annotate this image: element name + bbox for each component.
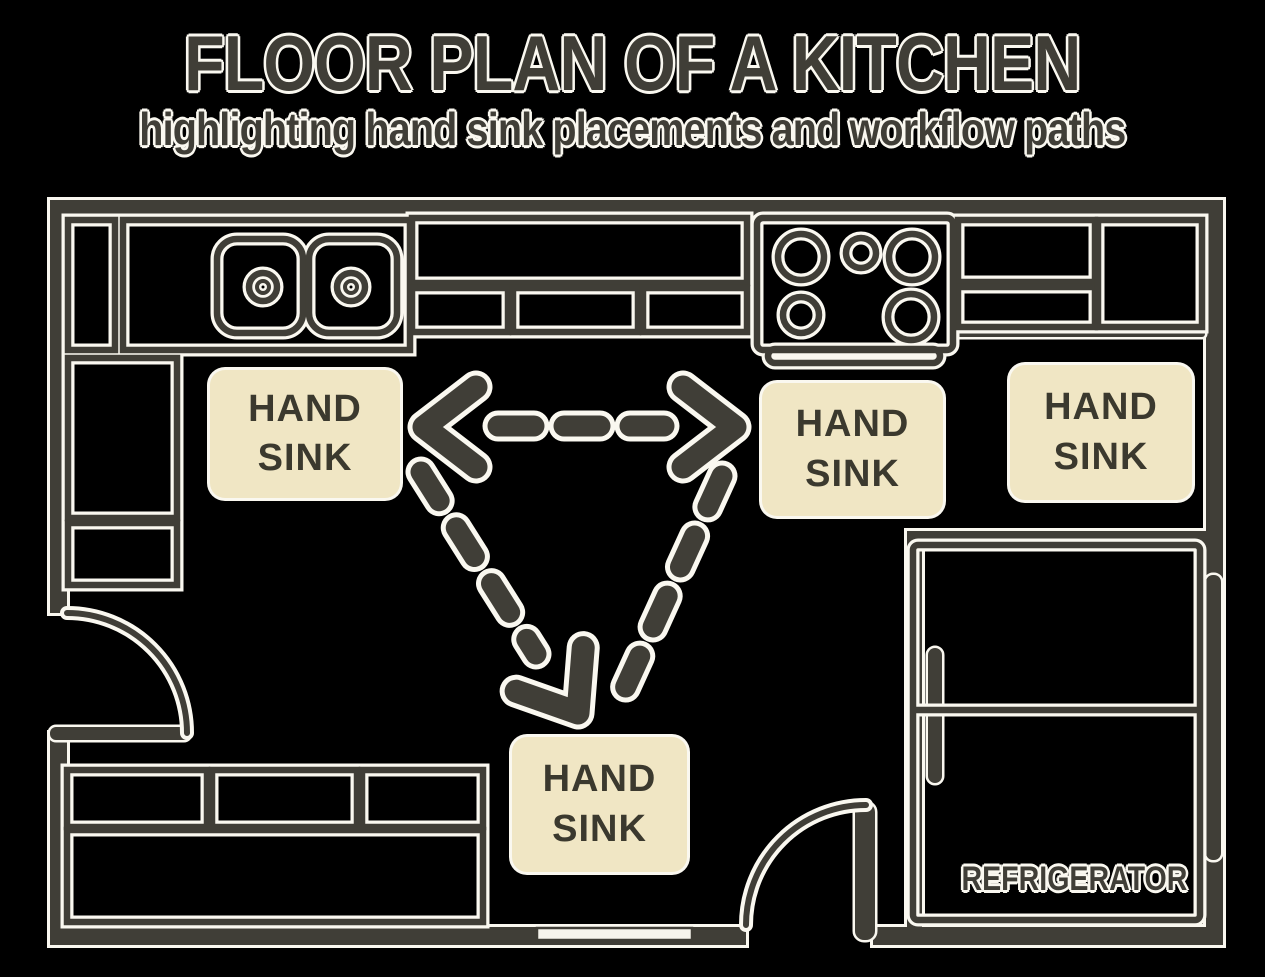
door-left-arc-icon <box>67 613 187 733</box>
door-left-leaf <box>50 727 190 740</box>
workflow-right-diagonal-dashes <box>617 476 722 706</box>
refrigerator-wall-hinge-bar <box>1206 575 1221 860</box>
hand-sink-label-top-middle: HAND SINK <box>762 383 943 516</box>
floor-plan-figure: FLOOR PLAN OF A KITCHEN highlighting han… <box>0 0 1265 977</box>
hand-sink-label-line1: HAND <box>796 400 910 449</box>
door-bottom-arc-icon <box>746 805 866 925</box>
hand-sink-label-bottom: HAND SINK <box>512 737 687 872</box>
hand-sink-label-line2: SINK <box>1054 433 1149 482</box>
window-bottom-wall <box>537 928 692 940</box>
hand-sink-label-top-right: HAND SINK <box>1010 365 1192 500</box>
hand-sink-label-line2: SINK <box>805 450 900 499</box>
hand-sink-label-line2: SINK <box>552 805 647 854</box>
refrigerator-label: REFRIGERATOR <box>940 860 1186 899</box>
hand-sink-label-line1: HAND <box>543 755 657 804</box>
workflow-arrows <box>421 387 735 735</box>
hand-sink-label-top-left: HAND SINK <box>210 370 400 498</box>
door-bottom-leaf <box>855 803 875 940</box>
hand-sink-label-line1: HAND <box>1044 383 1158 432</box>
hand-sink-label-line1: HAND <box>248 385 362 434</box>
hand-sink-label-line2: SINK <box>258 434 353 483</box>
